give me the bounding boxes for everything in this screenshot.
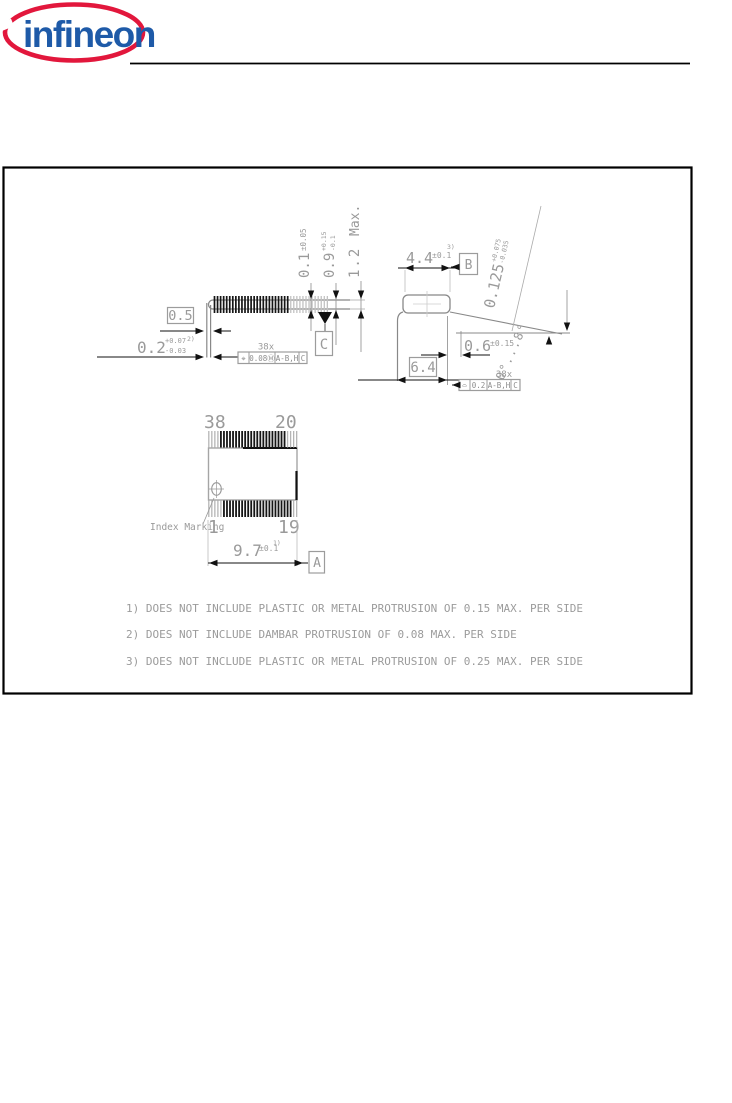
dim-lead-thickness-endview: 0.125 +0.075 -0.035	[479, 238, 513, 310]
fcf2-symbol-profile: ⌓	[462, 381, 467, 390]
dim-body-thickness-value: 0.9	[322, 253, 338, 278]
bent-lead	[207, 303, 211, 358]
dim-foot-length-value: 0.6	[464, 337, 491, 355]
dim-body-length-value: 9.7	[233, 541, 262, 560]
dim-standoff-value: 0.1	[297, 253, 313, 278]
dim-body-thickness-tol-plus: +0.15	[320, 231, 328, 251]
fcf2-datum-primary: A-B,H	[488, 381, 511, 390]
dim-body-thickness-tol-minus: -0.1	[329, 235, 337, 251]
side-lead-count: 38x	[258, 343, 275, 353]
dim-lead-thickness-endview-value: 0.125	[480, 262, 508, 310]
lead-thickness-leader	[512, 206, 541, 331]
datasheet-page: infineon 0.5 0.2 +0.07 2) -0.03 0.1 ±0.0…	[0, 0, 732, 1103]
logo-wordmark: infineon	[23, 14, 155, 55]
dim-body-width-note-ref: 3)	[447, 243, 455, 251]
datum-b-label: B	[465, 258, 473, 273]
fcf-symbol-position: ⌖	[241, 354, 246, 363]
fcf2-tolerance: 0.2	[472, 381, 486, 390]
dim-lead-thickness-value: 0.2	[137, 338, 166, 357]
dim-lead-thickness-note-ref: 2)	[187, 335, 195, 343]
note-2: 2) DOES NOT INCLUDE DAMBAR PROTRUSION OF…	[126, 628, 517, 641]
body-outline-top-view	[209, 448, 298, 500]
end-feature-control-frame: ⌓ 0.2 A-B,H C	[452, 380, 520, 391]
pin-number-20: 20	[275, 412, 297, 433]
lead-slope-line	[450, 312, 562, 334]
pin-number-1: 1	[208, 517, 219, 538]
fcf2-datum-secondary: C	[513, 381, 518, 390]
dim-body-length-note-ref: 1)	[273, 539, 281, 547]
fcf-datum-secondary: C	[301, 354, 306, 363]
note-3: 3) DOES NOT INCLUDE PLASTIC OR METAL PRO…	[126, 655, 583, 668]
side-view: 0.5 0.2 +0.07 2) -0.03 0.1 ±0.05 0.9 +0.…	[97, 205, 365, 364]
body-extension-lines	[350, 300, 365, 309]
dim-overall-width: 6.4	[410, 360, 435, 376]
dim-body-width-value: 4.4	[406, 249, 433, 267]
side-feature-control-frame: ⌖ 0.08Ⓜ A-B,H C	[238, 352, 307, 364]
fcf-datum-primary: A-B,H	[276, 354, 299, 363]
dim-body-width-tol: ±0.1	[432, 251, 451, 260]
dim-standoff: 0.1 ±0.05	[297, 228, 313, 278]
package-outline-drawing: infineon 0.5 0.2 +0.07 2) -0.03 0.1 ±0.0…	[0, 0, 732, 1103]
dim-lead-thickness-tol-plus: +0.07	[165, 337, 186, 345]
datum-a-label: A	[313, 556, 321, 571]
end-view: 4.4 ±0.1 3) 0.6 ±0.15 0.125 +0.075 -0.03…	[358, 206, 570, 391]
dim-body-thickness: 0.9 +0.15 -0.1	[320, 231, 338, 278]
top-view: Index Marking 38 20 1 19 9.7 ±0.1 1) A	[150, 412, 325, 573]
foot-extension-lines	[448, 316, 462, 385]
fcf-tolerance: 0.08Ⓜ	[249, 354, 275, 363]
pin-number-38: 38	[204, 412, 226, 433]
lead-ticks-side	[215, 296, 328, 313]
infineon-logo: infineon	[0, 5, 155, 61]
left-profile-line	[398, 312, 404, 381]
datum-c-triangle	[318, 312, 332, 324]
dim-standoff-tol: ±0.05	[299, 228, 308, 251]
index-marking-cross	[209, 480, 224, 498]
pin-number-19: 19	[278, 517, 300, 538]
dim-total-height-suffix: Max.	[348, 205, 363, 236]
drawing-notes: 1) DOES NOT INCLUDE PLASTIC OR METAL PRO…	[126, 602, 583, 668]
dim-lead-width: 0.5	[168, 308, 192, 324]
body-width-extensions	[405, 270, 450, 292]
dim-lead-thickness-tol-minus: -0.03	[165, 347, 186, 355]
lead-ticks-bottom-row	[209, 501, 297, 518]
dim-total-height-value: 1.2	[347, 247, 363, 278]
end-lead-count: 38x	[496, 370, 513, 380]
note-1: 1) DOES NOT INCLUDE PLASTIC OR METAL PRO…	[126, 602, 583, 615]
lead-ticks-top-row	[209, 431, 297, 448]
datum-c-label: C	[320, 337, 328, 353]
dim-total-height: 1.2 Max.	[347, 205, 363, 278]
